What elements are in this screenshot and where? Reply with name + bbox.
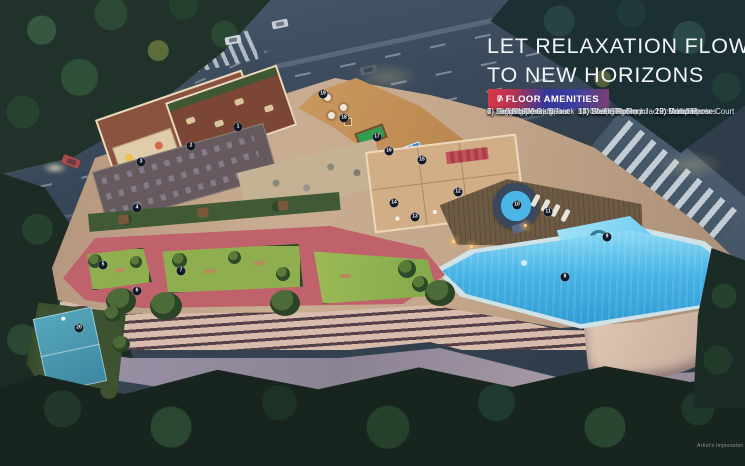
badge-label: FLOOR AMENITIES [503,94,599,105]
amenity-marker-6: 6 [133,287,142,296]
amenity-marker-19: 19 [319,90,328,99]
amenity-marker-1: 1 [234,123,243,132]
badge-ordinal: th [497,97,503,103]
amenity-marker-20: 20 [75,324,84,333]
amenity-marker-13: 13 [411,213,420,222]
amenity-item: 7) Landscape Garden [487,106,562,118]
amenity-marker-9: 9 [603,233,612,242]
title-line-1: LET RELAXATION FLOW [487,32,743,61]
amenity-item: 20) Multipurpose Court [655,106,734,118]
artists-impression-note: Artist's Impression [697,443,743,449]
title-line-2: TO NEW HORIZONS [487,61,743,90]
amenity-marker-3: 3 [137,158,146,167]
amenity-marker-12: 12 [454,188,463,197]
page-title: LET RELAXATION FLOW TO NEW HORIZONS [487,32,743,90]
amenity-marker-2: 2 [187,142,196,151]
amenity-marker-11: 11 [544,208,553,217]
amenity-marker-10: 10 [513,201,522,210]
amenities-brochure-page: 1234567891011121314151617181920 LET RELA… [0,0,745,466]
amenity-marker-4: 4 [133,204,142,213]
amenity-marker-7: 7 [177,267,186,276]
amenity-marker-14: 14 [390,199,399,208]
amenity-marker-8: 8 [561,273,570,282]
amenity-marker-5: 5 [99,261,108,270]
amenity-marker-17: 17 [373,133,382,142]
amenity-marker-15: 15 [418,156,427,165]
amenity-marker-16: 16 [385,147,394,156]
amenity-item: 14) Steam Room [578,106,637,118]
amenity-marker-18: 18 [340,114,349,123]
